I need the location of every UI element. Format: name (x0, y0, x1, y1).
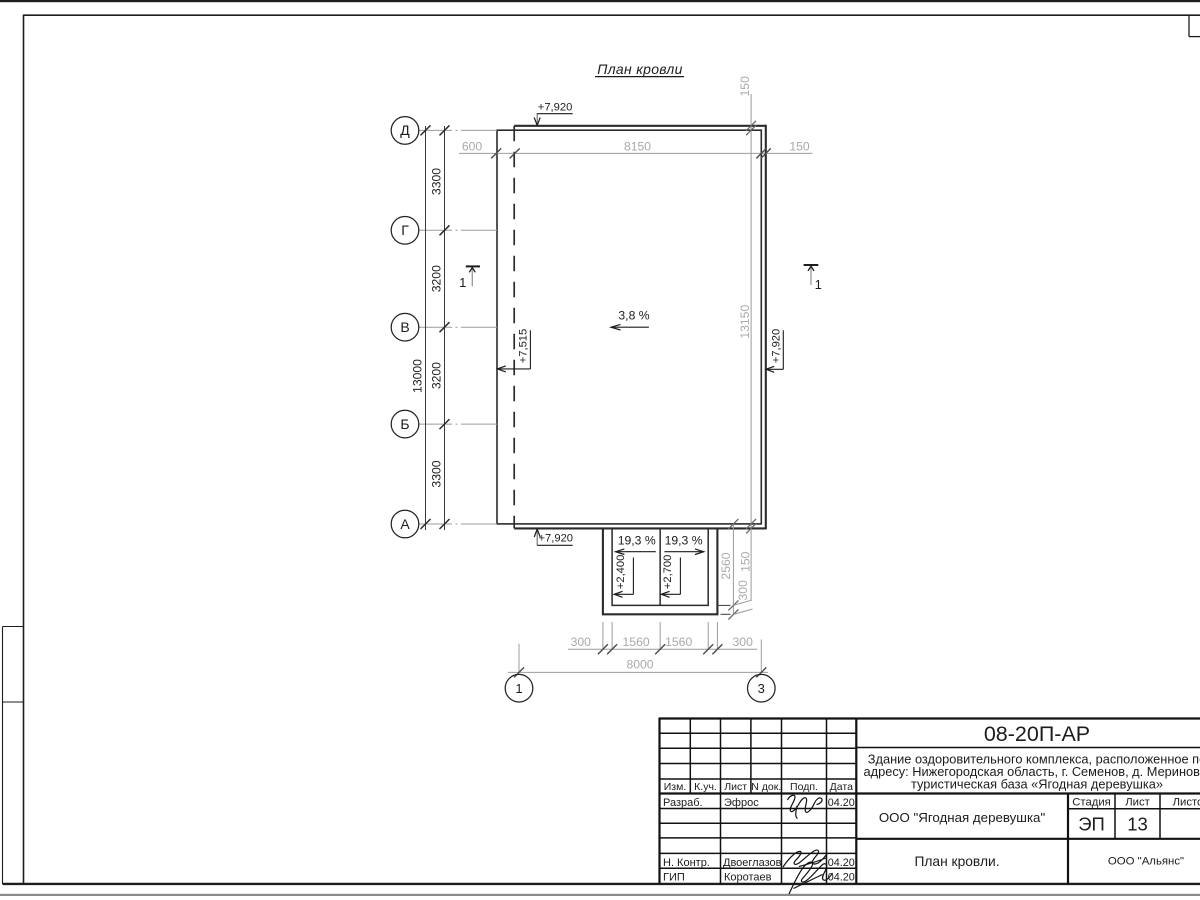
svg-text:150: 150 (789, 139, 810, 153)
svg-text:Б: Б (400, 416, 409, 432)
svg-text:В: В (400, 319, 409, 335)
svg-text:+7,920: +7,920 (538, 101, 573, 113)
svg-text:3200: 3200 (430, 265, 444, 292)
svg-text:Г: Г (401, 222, 409, 238)
svg-text:ООО "Ягодная деревушка": ООО "Ягодная деревушка" (879, 810, 1046, 825)
svg-text:300: 300 (733, 635, 754, 649)
svg-text:13: 13 (1127, 814, 1148, 835)
svg-text:А: А (400, 516, 410, 532)
svg-text:1: 1 (459, 275, 466, 290)
svg-text:150: 150 (738, 76, 752, 97)
svg-text:04.20: 04.20 (828, 797, 855, 809)
svg-text:Лист: Лист (724, 781, 747, 793)
svg-text:Эфрос: Эфрос (724, 797, 759, 809)
svg-text:Стадия: Стадия (1072, 797, 1111, 809)
svg-text:19,3 %: 19,3 % (665, 534, 703, 548)
svg-text:3,8 %: 3,8 % (618, 309, 649, 323)
svg-text:3300: 3300 (430, 460, 444, 487)
svg-text:+7,515: +7,515 (517, 329, 529, 364)
svg-text:ГИП: ГИП (663, 872, 685, 884)
svg-text:N док.: N док. (751, 781, 781, 793)
svg-text:300: 300 (571, 635, 592, 649)
svg-text:08-20П-АР: 08-20П-АР (984, 722, 1090, 746)
svg-text:+2,400: +2,400 (615, 555, 627, 590)
svg-text:8150: 8150 (624, 139, 651, 153)
svg-text:Двоеглазов: Двоеглазов (723, 857, 782, 869)
svg-text:1: 1 (515, 681, 522, 696)
svg-text:19,3 %: 19,3 % (618, 534, 656, 548)
svg-text:Коротаев: Коротаев (724, 872, 772, 884)
svg-text:8000: 8000 (626, 658, 653, 672)
svg-text:Разраб.: Разраб. (663, 797, 703, 809)
svg-text:3: 3 (758, 681, 765, 696)
svg-text:План кровли: План кровли (597, 61, 682, 77)
svg-text:04.20: 04.20 (828, 857, 855, 869)
svg-text:План кровли.: План кровли. (914, 854, 999, 869)
svg-text:ООО "Альянс": ООО "Альянс" (1108, 856, 1184, 868)
svg-text:Н. Контр.: Н. Контр. (663, 857, 710, 869)
svg-text:1560: 1560 (665, 635, 692, 649)
svg-text:2560: 2560 (719, 552, 733, 579)
svg-text:ЭП: ЭП (1078, 814, 1105, 835)
svg-text:1: 1 (815, 277, 822, 292)
svg-text:Дата: Дата (830, 781, 853, 793)
svg-text:Д: Д (400, 122, 410, 138)
svg-text:Лист: Лист (1125, 797, 1150, 809)
svg-text:3300: 3300 (430, 168, 444, 195)
svg-text:150: 150 (739, 551, 753, 572)
svg-text:+7,920: +7,920 (770, 329, 782, 364)
svg-text:Подп.: Подп. (790, 781, 818, 793)
svg-text:1560: 1560 (623, 635, 650, 649)
svg-text:3200: 3200 (430, 362, 444, 389)
svg-text:13150: 13150 (738, 305, 752, 339)
svg-text:600: 600 (462, 139, 483, 153)
svg-text:300: 300 (736, 580, 750, 601)
svg-text:Изм.: Изм. (664, 781, 687, 793)
svg-text:+2,700: +2,700 (662, 555, 674, 590)
svg-text:Листов: Листов (1173, 797, 1200, 809)
svg-text:+7,920: +7,920 (539, 532, 574, 544)
svg-text:туристическая база «Ягодная де: туристическая база «Ягодная деревушка» (911, 777, 1163, 792)
svg-text:13000: 13000 (411, 359, 425, 393)
svg-text:К.уч.: К.уч. (694, 781, 717, 793)
